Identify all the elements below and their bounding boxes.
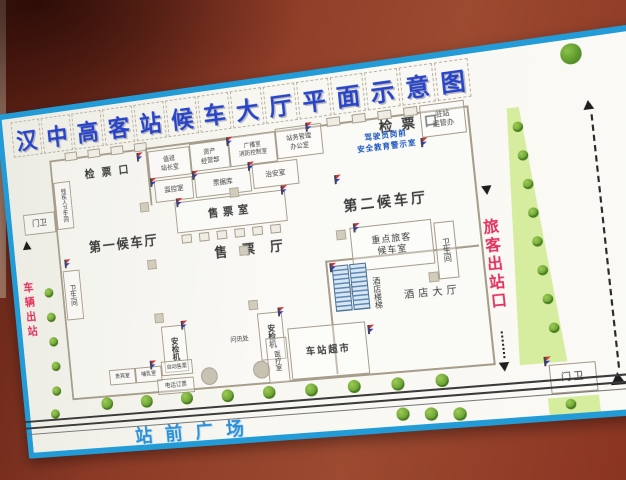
title-char: 厅 [263, 82, 298, 124]
sign-board-wrap: 汉 中 高 客 站 候 车 大 厅 平 面 示 意 图 N [0, 18, 626, 459]
title-char: 中 [41, 114, 73, 154]
bush-icon [347, 379, 361, 393]
bush-icon [180, 391, 193, 405]
room-asset-mgmt: 资产 经营部 [189, 139, 231, 172]
dotted-route [501, 331, 506, 358]
flag-icon [136, 153, 139, 162]
flag-icon [420, 138, 423, 147]
ticket-window [252, 226, 263, 236]
arrow-down-icon [481, 185, 492, 195]
bush-icon [391, 377, 405, 391]
flag-icon [192, 171, 195, 180]
flag-icon [367, 325, 370, 334]
bush-icon [140, 395, 153, 408]
bush-icon [304, 383, 318, 397]
pillar [139, 202, 149, 213]
plaza-title: 站前广场 [134, 415, 258, 450]
ticket-window [270, 224, 281, 234]
flag-icon [150, 178, 153, 187]
gate-door-mark [87, 148, 100, 158]
bush-icon [46, 312, 56, 322]
photo-of-station-map: 汉 中 高 客 站 候 车 大 厅 平 面 示 意 图 N [0, 0, 626, 480]
title-char: 站 [133, 101, 167, 141]
title-char: 平 [296, 78, 332, 120]
title-char: 意 [399, 63, 436, 106]
gate-door-mark [110, 145, 123, 155]
flag-icon [280, 186, 283, 195]
room-supermarket: 车站超市 [287, 321, 370, 380]
bush-icon [396, 407, 410, 421]
bush-icon [221, 389, 234, 403]
bush-icon [101, 397, 114, 410]
pillar [154, 313, 164, 324]
flag-icon [181, 321, 184, 330]
flag-icon [64, 260, 67, 269]
flag-icon [353, 223, 356, 232]
title-char: 图 [434, 58, 472, 101]
title-char: 汉 [11, 118, 43, 157]
bush-icon [424, 407, 439, 421]
gate-door-mark [64, 151, 77, 161]
pillar [239, 245, 249, 256]
station-map-sign: 汉 中 高 客 站 候 车 大 厅 平 面 示 意 图 N [0, 18, 626, 459]
flag-icon [329, 263, 332, 272]
pillar [428, 271, 439, 282]
ticket-window [234, 228, 245, 238]
room-auto-ticket: 自动售票 [161, 359, 194, 376]
title-char: 大 [230, 87, 265, 128]
ticket-window [216, 230, 227, 240]
room-duty-master: 值班 站长室 [147, 146, 192, 179]
title-char: 候 [165, 96, 199, 137]
title-char: 面 [330, 73, 366, 115]
room-monitor: 监控室 [154, 176, 195, 203]
room-medical: 医疗室 [265, 337, 291, 384]
vehicle-exit-label: 车辆出站 [18, 256, 42, 366]
ticket-window [181, 234, 192, 244]
pillar [147, 259, 157, 270]
pillar [229, 187, 239, 198]
dashed-route [590, 114, 620, 368]
flag-icon [334, 175, 337, 184]
flag-icon [150, 361, 153, 370]
bush-icon [262, 385, 276, 399]
title-char: 示 [364, 68, 401, 111]
bush-icon [44, 288, 54, 298]
bush-icon [52, 386, 62, 396]
arrow-up-icon [22, 241, 31, 250]
title-char: 高 [71, 110, 104, 150]
title-char: 车 [197, 92, 231, 133]
flag-icon [226, 137, 229, 146]
vehicle-entry-label: 车辆进站 [620, 123, 626, 366]
bush-icon [435, 373, 450, 387]
bush-icon [49, 337, 59, 347]
flag-icon [543, 357, 546, 367]
flag-icon [277, 307, 280, 316]
room-vip: 贵宾室 [109, 368, 136, 386]
arrow-down-icon [499, 362, 510, 372]
room-transport-office: 驻站 运管办 [419, 100, 467, 138]
bush-icon [453, 407, 468, 421]
ticket-window [199, 232, 210, 242]
pillar [336, 229, 347, 240]
pillar [248, 300, 258, 311]
flag-icon [176, 198, 179, 207]
gatehouse-left: 门卫 [23, 211, 56, 235]
arrow-up-icon [582, 99, 594, 110]
flag-icon [247, 162, 250, 171]
title-char: 客 [102, 105, 135, 145]
gate-door-mark [326, 116, 341, 127]
room-station-admin: 站务管理 办公室 [275, 123, 324, 160]
flag-icon [305, 123, 308, 132]
bush-icon [51, 361, 61, 371]
tree-icon [559, 42, 583, 66]
